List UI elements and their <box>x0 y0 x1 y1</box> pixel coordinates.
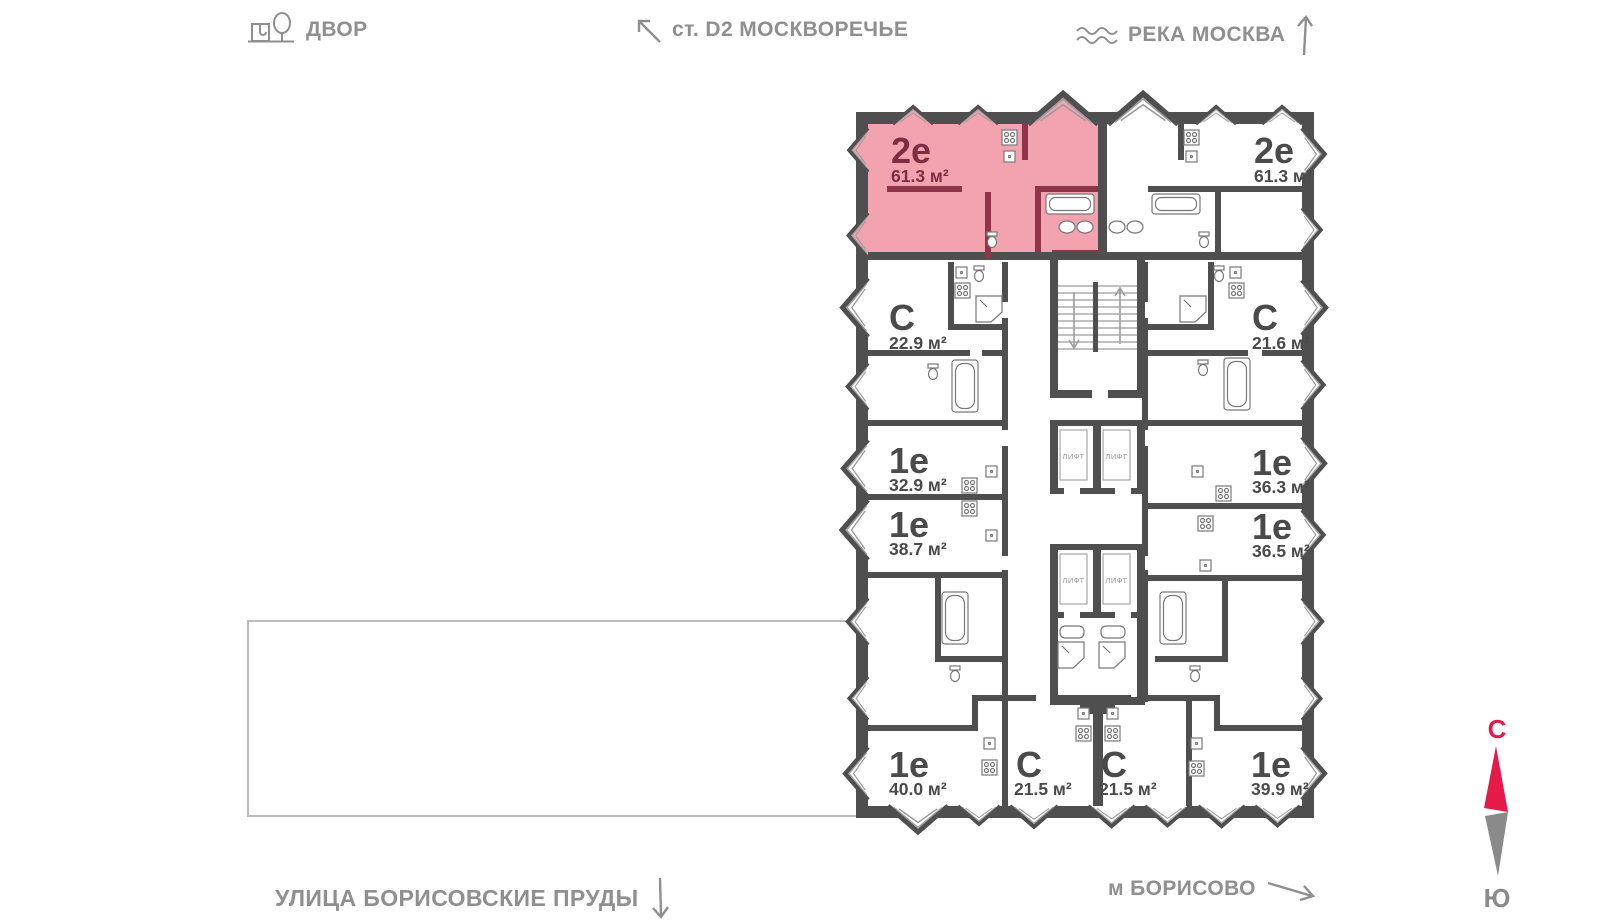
elevator-label: ЛИФТ <box>1062 576 1084 585</box>
toilet-icon <box>1198 360 1208 376</box>
bathtub-icon <box>952 360 978 412</box>
apartment-2e-61-3[interactable] <box>1104 112 1314 262</box>
apartment-s-21-5-left[interactable] <box>1008 701 1093 806</box>
apartment-2e-61-3-highlighted[interactable] <box>856 112 1104 262</box>
sink-icon <box>1101 626 1125 638</box>
elevator-label: ЛИФТ <box>1105 576 1127 585</box>
sink-icon <box>1060 626 1084 638</box>
elevator-label: ЛИФТ <box>1105 452 1127 461</box>
elevator-label: ЛИФТ <box>1062 452 1084 461</box>
toilet-icon <box>928 364 938 380</box>
apartment-s-21-5-right[interactable] <box>1103 701 1186 806</box>
apartment-s-22-9[interactable] <box>868 262 1008 350</box>
bathtub-icon <box>1160 592 1186 644</box>
toilet-icon <box>950 666 960 682</box>
apartment-1e-40-0[interactable] <box>868 701 1002 806</box>
floorplan: ЛИФТ ЛИФТ ЛИФТ ЛИФТ <box>0 0 1600 920</box>
floorplan-page: ДВОР ст. D2 МОСКВОРЕЧЬЕ РЕКА МОСКВА УЛИЦ… <box>0 0 1600 920</box>
bathtub-icon <box>1224 358 1250 410</box>
apartment-1e-36-5[interactable] <box>1148 509 1302 575</box>
apartment-s-21-6[interactable] <box>1148 262 1302 350</box>
bathtub-icon <box>942 592 968 644</box>
apartment-1e-32-9[interactable] <box>868 426 1008 494</box>
toilet-icon <box>1190 666 1200 682</box>
adjacent-building-outline <box>248 621 868 816</box>
apartment-1e-39-9[interactable] <box>1192 701 1302 806</box>
apartment-1e-38-7[interactable] <box>868 500 1008 572</box>
apartment-1e-36-3[interactable] <box>1148 426 1302 503</box>
